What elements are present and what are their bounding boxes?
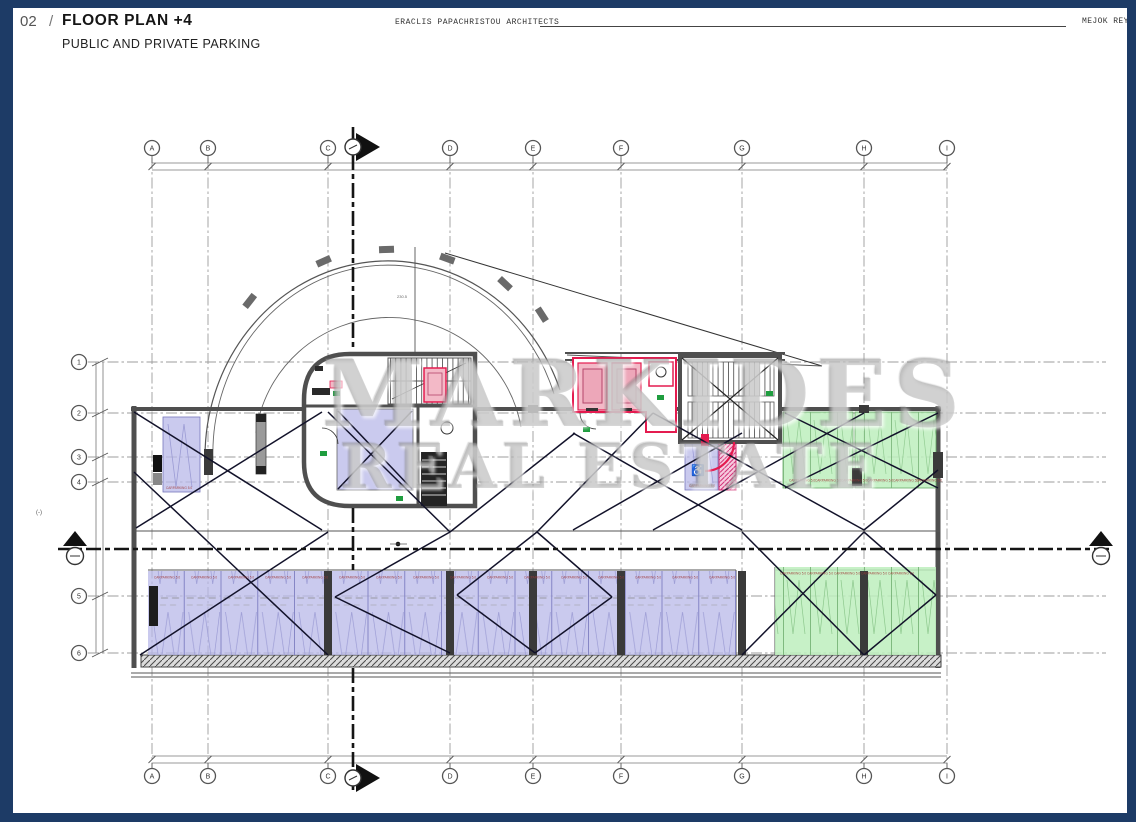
- stall-label: CARPARKING 5.0: [709, 576, 735, 580]
- sheet-header: 02 / FLOOR PLAN +4 PUBLIC AND PRIVATE PA…: [0, 0, 1136, 60]
- grid-row-1-label: 1: [77, 360, 81, 367]
- stall-labels: CARPARKING 5.0CARPARKING 5.0CARPARKING 5…: [154, 479, 942, 580]
- stall-label: CARPARKING 5.0: [689, 484, 715, 488]
- section-marker-right: [1089, 531, 1113, 565]
- grid-row-4-label: 4: [77, 480, 81, 487]
- section-marker-top: [345, 133, 380, 161]
- grid-column-bottom-C-label: C: [325, 774, 330, 781]
- stall-label: CARPARKING 5.0: [861, 572, 887, 576]
- frame-border-top: [0, 0, 1136, 8]
- stall-label: CARPARKING 5.0: [841, 479, 867, 483]
- sheet-page: 02 / FLOOR PLAN +4 PUBLIC AND PRIVATE PA…: [0, 0, 1136, 822]
- stall-label: CARPARKING 5.0: [302, 576, 328, 580]
- fire-sign: [330, 381, 342, 388]
- stall-label: CARPARKING 5.0: [154, 576, 180, 580]
- service-shaft: [153, 455, 162, 472]
- bottom-retaining-wall: [141, 655, 941, 667]
- page-title: FLOOR PLAN +4: [62, 12, 193, 30]
- grid-column-bottom-I-label: I: [946, 774, 948, 781]
- grid-column-C-label: C: [325, 146, 330, 153]
- stall-label: CARPARKING 5.0: [450, 576, 476, 580]
- service-shaft-2: [149, 586, 158, 626]
- parking-zones: ♿: [148, 405, 943, 655]
- frame-border-left: [0, 0, 13, 822]
- grid-column-H-label: H: [861, 146, 866, 153]
- stall-label: CARPARKING 5.0: [807, 572, 833, 576]
- grid-row-2-label: 2: [77, 411, 81, 418]
- grid-column-B-label: B: [206, 146, 211, 153]
- grid-row-5-label: 5: [77, 594, 81, 601]
- grid-column-bottom-F-label: F: [619, 774, 623, 781]
- grid-column-I-label: I: [946, 146, 948, 153]
- header-rule: [540, 26, 1066, 27]
- page-subtitle: PUBLIC AND PRIVATE PARKING: [62, 37, 261, 51]
- wc-room: [649, 362, 673, 386]
- stair-core-west: [304, 354, 475, 506]
- stall-label: CARPARKING 5.0: [789, 479, 815, 483]
- floor-plan-drawing: 230.5 ♿: [0, 0, 1136, 822]
- stall-label: CARPARKING 5.0: [635, 576, 661, 580]
- stall-label: CARPARKING 5.0: [191, 576, 217, 580]
- stall-label: CARPARKING 5.0: [166, 486, 192, 490]
- stall-label: CARPARKING 5.0: [487, 576, 513, 580]
- car-symbol: [390, 542, 407, 547]
- grid-column-E-label: E: [531, 146, 536, 153]
- grid-column-bottom-A-label: A: [150, 774, 155, 781]
- stall-label: CARPARKING 5.0: [815, 479, 841, 483]
- section-lines: [58, 127, 1112, 790]
- stall-label: CARPARKING 5.0: [376, 576, 402, 580]
- stall-label: CARPARKING 5.0: [888, 572, 914, 576]
- grid-column-D-label: D: [447, 146, 452, 153]
- stall-label: CARPARKING 5.0: [524, 576, 550, 580]
- architect-name: ERACLIS PAPACHRISTOU ARCHITECTS: [395, 18, 559, 27]
- ramp-dimension: 230.5: [397, 294, 408, 299]
- stall-label: CARPARKING 5.0: [561, 576, 587, 580]
- stall-label: CARPARKING 5.0: [413, 576, 439, 580]
- project-name: MEJOK REY: [1082, 17, 1127, 26]
- wall-pier: [256, 414, 266, 474]
- section-marker-bottom: [345, 764, 380, 792]
- stall-label: CARPARKING 5.0: [672, 576, 698, 580]
- stall-label: CARPARKING 5.0: [916, 479, 942, 483]
- elevator-core-east: [565, 353, 785, 471]
- stall-label: CARPARKING 5.0: [598, 576, 624, 580]
- grid-column-A-label: A: [150, 146, 155, 153]
- stall-label: CARPARKING 5.0: [780, 572, 806, 576]
- grid-column-bottom-G-label: G: [739, 774, 744, 781]
- stall-label: CARPARKING 5.0: [867, 479, 893, 483]
- grid-row-3-label: 3: [77, 455, 81, 462]
- grid-column-F-label: F: [619, 146, 623, 153]
- stall-label: CARPARKING 5.0: [265, 576, 291, 580]
- grid-column-bottom-H-label: H: [861, 774, 866, 781]
- margin-note: (-): [36, 510, 42, 516]
- frame-border-right: [1127, 0, 1136, 822]
- sheet-number: 02: [20, 13, 37, 30]
- grid-column-G-label: G: [739, 146, 744, 153]
- grid-column-bottom-E-label: E: [531, 774, 536, 781]
- grid-column-bottom-D-label: D: [447, 774, 452, 781]
- stall-label: CARPARKING 5.0: [228, 576, 254, 580]
- sheet-separator: /: [49, 13, 53, 30]
- wheelchair-icon: ♿: [691, 464, 705, 477]
- grid-row-6-label: 6: [77, 651, 81, 658]
- stall-label: CARPARKING 5.0: [834, 572, 860, 576]
- stall-label: CARPARKING 5.0: [339, 576, 365, 580]
- grid-column-bottom-B-label: B: [206, 774, 211, 781]
- frame-border-bottom: [0, 813, 1136, 822]
